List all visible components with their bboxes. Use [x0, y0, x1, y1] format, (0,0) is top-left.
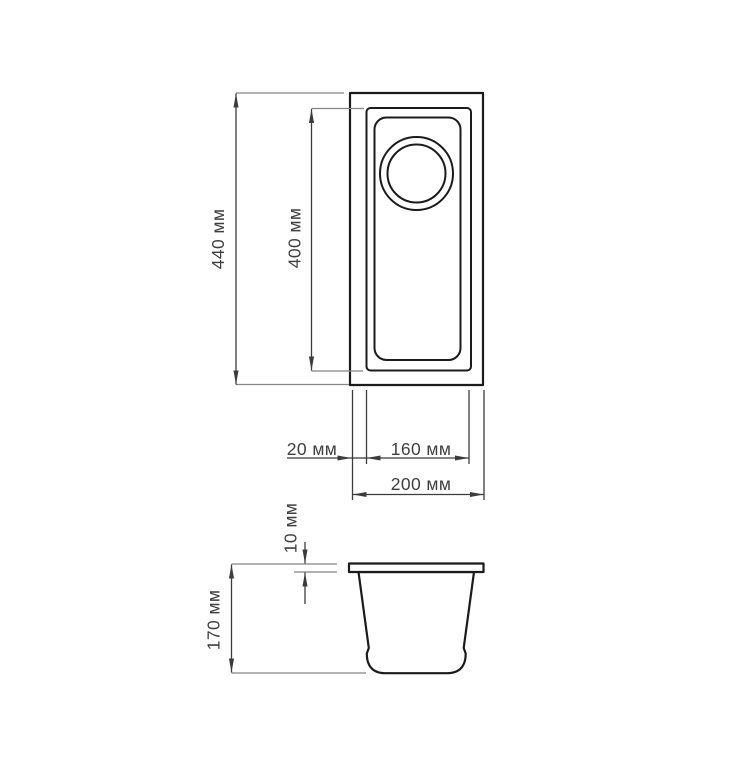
- dim-basin-height-label: 400 мм: [285, 208, 305, 269]
- top-view: [350, 93, 483, 385]
- sink-technical-drawing: 440 мм 400 мм 20 мм 160 мм: [0, 0, 729, 768]
- dim-basin-width-label: 160 мм: [391, 439, 452, 459]
- dim-rim-thickness: 10 мм: [281, 503, 338, 604]
- dim-outer-width-label: 200 мм: [391, 474, 452, 494]
- dim-basin-width: 160 мм: [367, 439, 470, 459]
- dim-edge-offset: 20 мм: [287, 439, 367, 459]
- dim-outer-height: 440 мм: [208, 93, 349, 385]
- dim-edge-offset-label: 20 мм: [287, 439, 337, 459]
- sink-rim-profile: [349, 564, 484, 573]
- dim-outer-height-label: 440 мм: [208, 209, 228, 270]
- dim-rim-thickness-label: 10 мм: [281, 503, 301, 553]
- drawing-canvas: 440 мм 400 мм 20 мм 160 мм: [0, 0, 729, 768]
- side-view: [349, 564, 484, 674]
- sink-body-profile: [359, 572, 475, 673]
- dim-outer-width: 200 мм: [353, 474, 485, 495]
- dim-total-height-label: 170 мм: [204, 590, 224, 651]
- dim-total-height: 170 мм: [204, 564, 367, 673]
